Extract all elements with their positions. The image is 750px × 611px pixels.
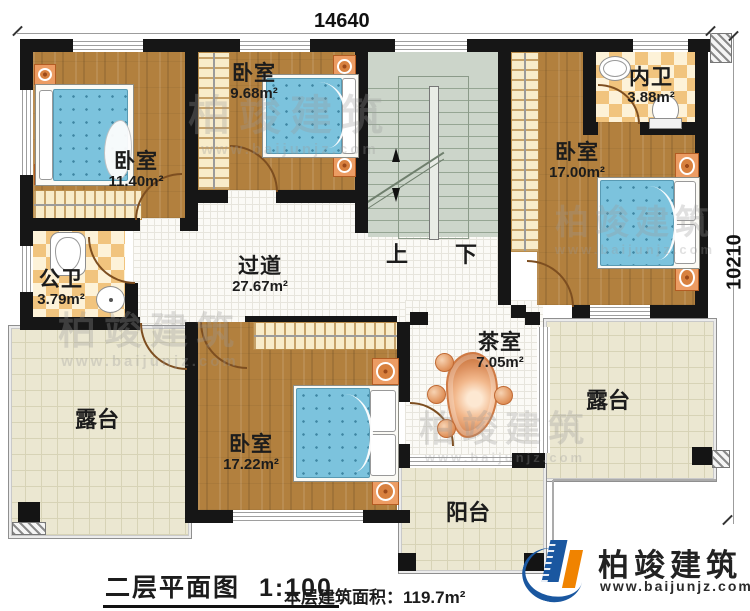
pillow xyxy=(674,224,696,264)
label-hallway: 过道 27.67m² xyxy=(195,255,325,295)
dimension-tick xyxy=(722,515,733,526)
wall-tea-bottom-stub xyxy=(512,453,545,468)
pillow xyxy=(370,390,396,432)
wall-tea-stub-left xyxy=(410,312,428,325)
wardrobe-bedroom-tl xyxy=(33,190,142,220)
label-stairs-down: 下 xyxy=(455,237,477,269)
tea-stool xyxy=(437,419,456,438)
wall-tea-stub-right xyxy=(525,312,540,325)
label-bath-public: 公卫 3.79m² xyxy=(11,268,111,308)
wall-bedroom-tl-bottom-a xyxy=(33,218,140,231)
hatch-terrace-left xyxy=(12,522,46,535)
label-stairs-up: 上 xyxy=(386,237,408,269)
window-top-2 xyxy=(240,39,310,52)
window-bedroom-r-terrace xyxy=(590,305,650,318)
dimension-tick xyxy=(12,26,23,37)
pillow xyxy=(39,90,53,180)
company-logo: 柏竣建筑 www.baijunjz.com xyxy=(520,534,730,604)
wall-bedroom-tl-bottom-b xyxy=(180,218,198,231)
logo-url: www.baijunjz.com xyxy=(600,578,750,594)
label-terrace-left: 露台 xyxy=(75,402,119,434)
nightstand xyxy=(372,478,399,505)
label-tea-room: 茶室 7.05m² xyxy=(440,331,560,371)
roof-outline-h xyxy=(553,479,716,481)
dimension-line-top xyxy=(17,33,712,34)
column-terrace-right xyxy=(692,447,712,465)
nightstand xyxy=(372,358,399,385)
wall-bath-public-bottom xyxy=(20,317,140,330)
wall-bath-inner-left xyxy=(583,52,596,128)
wall-bedroom-tc-bottom-a xyxy=(198,190,228,203)
tea-stool xyxy=(427,385,446,404)
window-top-1 xyxy=(73,39,143,52)
label-terrace-right: 露台 xyxy=(586,383,630,415)
window-left-1 xyxy=(20,90,33,175)
label-balcony: 阳台 xyxy=(446,495,490,527)
floor-area-note: 本层建筑面积：119.7m² xyxy=(284,583,465,608)
dimension-top-value: 14640 xyxy=(314,10,370,33)
floor-plan: 柏竣建筑 www.baijunjz.com 柏竣建筑 www.baijunjz.… xyxy=(0,0,750,611)
label-bedroom-r: 卧室 17.00m² xyxy=(517,141,637,181)
window-bedroom-b-bottom xyxy=(233,510,363,523)
toilet-tank xyxy=(649,118,682,129)
label-bath-inner: 内卫 3.88m² xyxy=(601,66,701,106)
wall-bedroom-b-top xyxy=(245,316,397,322)
nightstand xyxy=(34,64,56,85)
column-terrace-left xyxy=(18,502,40,522)
floor-area-label: 本层建筑面积： xyxy=(284,588,403,607)
wall-bath-inner-bottom-a xyxy=(583,122,598,135)
window-tea-balcony xyxy=(410,455,512,468)
stair-arrow-down xyxy=(392,188,400,202)
wall-bedroom-r-bottom-a xyxy=(511,305,526,318)
pillow xyxy=(674,181,696,221)
hatch-terrace-right xyxy=(712,450,730,468)
window-top-stairwell xyxy=(395,39,467,52)
window-top-bath-inner xyxy=(633,39,688,52)
stair-arrow-up xyxy=(392,148,400,162)
column-balcony-left xyxy=(398,553,416,571)
wall-stair-right xyxy=(498,52,511,305)
label-bedroom-tc: 卧室 9.68m² xyxy=(195,62,313,102)
tea-stool xyxy=(494,386,513,405)
label-bedroom-tl: 卧室 11.40m² xyxy=(76,150,196,190)
dimension-right-value: 10210 xyxy=(724,234,747,290)
pillow xyxy=(370,434,396,476)
floor-area-value: 119.7m² xyxy=(403,588,465,607)
wardrobe-bedroom-b xyxy=(253,322,399,350)
wall-bedroom-tc-bottom-b xyxy=(276,190,368,203)
drawing-title-text: 二层平面图 xyxy=(105,574,240,602)
nightstand xyxy=(675,153,699,179)
label-bedroom-b: 卧室 17.22m² xyxy=(191,433,311,473)
